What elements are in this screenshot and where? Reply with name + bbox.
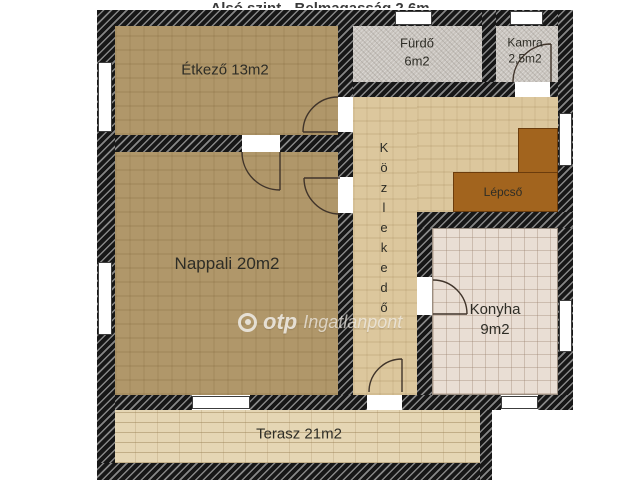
wall-terrace-right	[480, 410, 492, 480]
wall-mid-vertical-a	[338, 10, 353, 97]
door-gap-konyha	[417, 277, 432, 315]
window-furdo-top	[395, 11, 432, 25]
watermark-brand: otp	[263, 309, 297, 335]
room-kamra-label: Kamra 2,5m2	[507, 35, 542, 66]
wall-kamra-bottom	[550, 82, 558, 97]
plan-title: Alsó szint - Belmagasság 2,6m	[0, 0, 640, 8]
plan-title-text: Alsó szint - Belmagasság 2,6m	[210, 0, 429, 8]
room-etkezo-floor	[115, 26, 338, 135]
otp-logo-icon	[238, 313, 257, 332]
wall-etkezo-nappali-b	[280, 135, 338, 152]
wall-bottom-mid-3	[402, 395, 501, 410]
wall-furdo-bottom	[353, 82, 515, 97]
window-stairs-right	[559, 113, 572, 166]
window-nappali-left	[98, 262, 112, 335]
window-nappali-bottom	[192, 396, 250, 409]
room-furdo-name: Fürdő	[400, 34, 434, 52]
room-terasz-label: Terasz 21m2	[256, 426, 342, 443]
door-gap-etkezo-kozlekedo	[338, 97, 353, 132]
room-konyha-name: Konyha	[470, 300, 521, 320]
door-gap-etkezo-nappali	[242, 135, 280, 152]
wall-hall-konyha-b	[417, 315, 432, 395]
wall-etkezo-nappali-a	[115, 135, 242, 152]
room-nappali-label: Nappali 20m2	[175, 254, 280, 274]
window-etkezo-left	[98, 62, 112, 132]
room-etkezo-label: Étkező 13m2	[181, 62, 269, 79]
watermark: otp Ingatlanpont	[238, 309, 402, 335]
wall-mid-vertical-b	[338, 132, 353, 177]
wall-hall-konyha-a	[417, 228, 432, 277]
room-kamra-name: Kamra	[507, 35, 542, 51]
wall-bottom-mid-1	[115, 395, 192, 410]
room-furdo-area: 6m2	[400, 52, 434, 70]
door-gap-kozlekedo-nappali	[338, 177, 353, 213]
stairs-upper-step	[518, 128, 558, 173]
room-kozlekedo-label: Közlekedő	[377, 140, 392, 300]
wall-mid-vertical-c	[338, 213, 353, 395]
wall-bottom-mid-2	[250, 395, 367, 410]
door-gap-kozlekedo-terasz	[367, 395, 402, 410]
wall-top	[97, 10, 573, 26]
window-konyha-bottom	[501, 396, 538, 409]
room-konyha-area: 9m2	[470, 320, 521, 340]
wall-bottom	[97, 463, 492, 480]
door-gap-kamra	[515, 82, 550, 97]
wall-bottom-mid-4	[538, 395, 573, 410]
watermark-suffix: Ingatlanpont	[303, 312, 402, 333]
window-konyha-right	[559, 300, 572, 352]
wall-furdo-kamra-div	[482, 10, 496, 82]
room-kamra-area: 2,5m2	[507, 51, 542, 67]
wall-konyha-top	[417, 212, 573, 228]
room-konyha-label: Konyha 9m2	[470, 300, 521, 341]
floor-plan: Alsó szint - Belmagasság 2,6m	[0, 0, 640, 480]
room-furdo-label: Fürdő 6m2	[400, 34, 434, 69]
stairs-label: Lépcső	[484, 185, 523, 199]
window-kamra-top	[510, 11, 543, 25]
